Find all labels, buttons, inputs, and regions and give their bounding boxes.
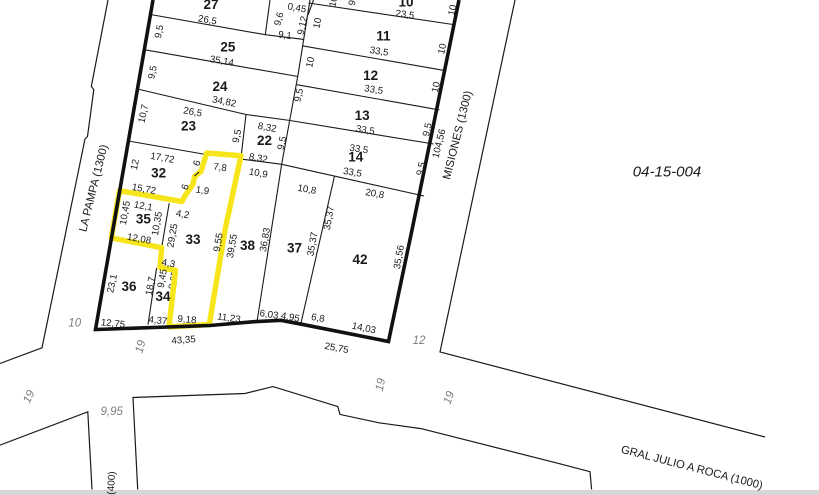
svg-text:12: 12: [413, 335, 426, 347]
svg-text:11: 11: [376, 29, 391, 44]
svg-text:4,2: 4,2: [175, 208, 190, 221]
svg-text:32: 32: [151, 165, 166, 180]
svg-text:10: 10: [68, 318, 81, 330]
svg-text:22: 22: [257, 133, 272, 148]
svg-text:1,9: 1,9: [195, 185, 210, 198]
svg-text:13: 13: [355, 108, 371, 123]
svg-text:6,8: 6,8: [310, 312, 325, 325]
svg-text:7,8: 7,8: [213, 162, 228, 175]
svg-text:42: 42: [352, 252, 367, 267]
svg-text:34: 34: [155, 289, 171, 304]
svg-text:4,3: 4,3: [161, 257, 176, 270]
svg-text:9,1: 9,1: [277, 29, 292, 42]
svg-text:(400): (400): [106, 471, 118, 495]
svg-text:27: 27: [203, 0, 218, 12]
svg-text:14: 14: [348, 150, 364, 165]
svg-text:9,18: 9,18: [177, 314, 197, 327]
svg-text:33: 33: [185, 232, 201, 247]
svg-text:35: 35: [136, 212, 152, 227]
svg-text:12: 12: [129, 158, 142, 171]
svg-text:24: 24: [212, 79, 228, 94]
svg-text:38: 38: [240, 238, 256, 253]
svg-text:23: 23: [181, 118, 197, 133]
svg-text:4,37: 4,37: [148, 315, 168, 328]
svg-text:43,35: 43,35: [171, 334, 196, 347]
svg-text:04-15-004: 04-15-004: [633, 164, 701, 181]
svg-text:9,: 9,: [347, 0, 359, 7]
svg-text:12: 12: [363, 68, 378, 83]
svg-text:25: 25: [220, 39, 236, 54]
svg-text:9,95: 9,95: [101, 406, 124, 418]
svg-text:37: 37: [287, 241, 302, 256]
svg-text:36: 36: [121, 279, 137, 294]
